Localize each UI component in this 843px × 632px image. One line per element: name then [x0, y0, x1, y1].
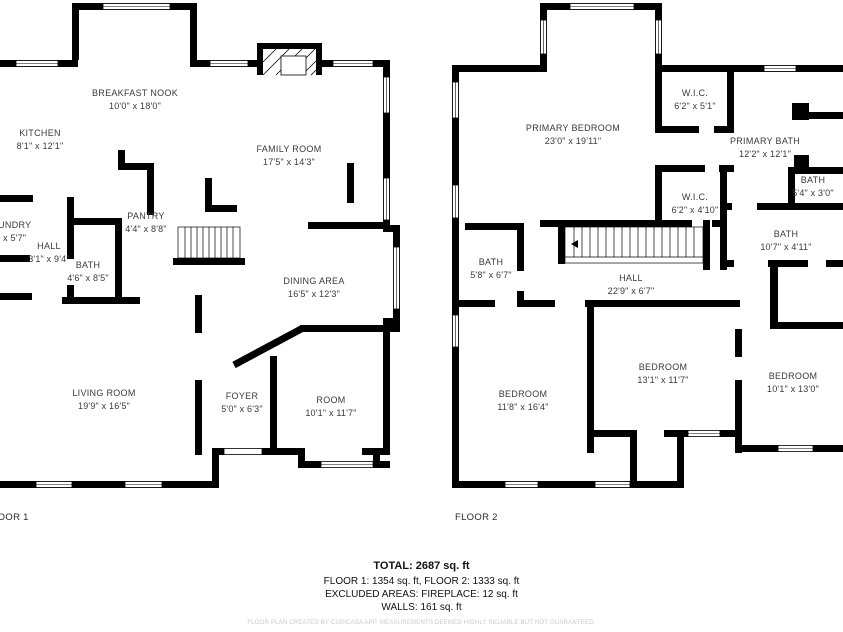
room-name: FAMILY ROOM [257, 145, 322, 154]
room-label: LIVING ROOM 19'9" x 16'5" [72, 389, 135, 411]
room-dims: 1" x 5'7" [0, 234, 31, 243]
floor2-caption: FLOOR 2 [455, 512, 498, 523]
room-dims: 23'0" x 19'11" [526, 137, 620, 146]
room-label: BEDROOM 13'1" x 11'7" [637, 363, 688, 385]
room-name: BEDROOM [637, 363, 688, 372]
room-label: HALL 3'1" x 9'4" [28, 242, 70, 264]
room-name: BREAKFAST NOOK [92, 89, 178, 98]
room-label: BATH 5'4" x 3'0" [792, 176, 834, 198]
room-name: LIVING ROOM [72, 389, 135, 398]
room-label: W.I.C. 6'2" x 5'1" [674, 89, 716, 111]
room-name: BATH [470, 258, 512, 267]
room-label: LAUNDRY 1" x 5'7" [0, 221, 31, 243]
fireplace [257, 43, 322, 75]
room-label: DINING AREA 16'5" x 12'3" [283, 277, 344, 299]
room-name: LAUNDRY [0, 221, 31, 230]
floor1-caption: FLOOR 1 [0, 512, 29, 523]
room-name: BEDROOM [767, 372, 819, 381]
room-dims: 10'1" x 11'7" [305, 409, 356, 418]
room-dims: 8'1" x 12'1" [17, 142, 64, 151]
room-name: W.I.C. [674, 89, 716, 98]
room-name: DINING AREA [283, 277, 344, 286]
room-dims: 17'5" x 14'3" [257, 158, 322, 167]
summary-floors: FLOOR 1: 1354 sq. ft, FLOOR 2: 1333 sq. … [0, 576, 843, 587]
room-name: HALL [28, 242, 70, 251]
room-dims: 10'1" x 13'0" [767, 385, 819, 394]
room-dims: 16'5" x 12'3" [283, 290, 344, 299]
room-name: W.I.C. [672, 193, 719, 202]
room-label: KITCHEN 8'1" x 12'1" [17, 129, 64, 151]
room-label: PRIMARY BEDROOM 23'0" x 19'11" [526, 124, 620, 146]
room-name: BATH [67, 261, 109, 270]
summary-walls: WALLS: 161 sq. ft [0, 602, 843, 613]
summary-excluded-areas: EXCLUDED AREAS: FIREPLACE: 12 sq. ft [0, 589, 843, 600]
room-dims: 22'9" x 6'7" [608, 287, 655, 296]
room-label: BATH 4'6" x 8'5" [67, 261, 109, 283]
room-label: HALL 22'9" x 6'7" [608, 274, 655, 296]
stairs-direction-arrow-icon [571, 240, 578, 248]
stairs-floor2 [565, 227, 703, 263]
room-dims: 12'2" x 12'1" [730, 150, 800, 159]
room-dims: 5'4" x 3'0" [792, 189, 834, 198]
disclaimer-text: FLOOR PLAN CREATED BY CUBICASA APP. MEAS… [0, 620, 843, 626]
room-name: PANTRY [125, 212, 167, 221]
room-dims: 4'4" x 8'8" [125, 225, 167, 234]
room-dims: 19'9" x 16'5" [72, 402, 135, 411]
room-label: BEDROOM 11'8" x 16'4" [497, 390, 548, 412]
room-dims: 5'0" x 6'3" [221, 405, 263, 414]
room-name: PRIMARY BEDROOM [526, 124, 620, 133]
room-label: PRIMARY BATH 12'2" x 12'1" [730, 137, 800, 159]
room-name: PRIMARY BATH [730, 137, 800, 146]
room-name: BATH [792, 176, 834, 185]
room-dims: 6'2" x 5'1" [674, 102, 716, 111]
room-label: BREAKFAST NOOK 10'0" x 18'0" [92, 89, 178, 111]
room-label: ROOM 10'1" x 11'7" [305, 396, 356, 418]
room-name: KITCHEN [17, 129, 64, 138]
room-label: FAMILY ROOM 17'5" x 14'3" [257, 145, 322, 167]
stairs-floor1 [178, 227, 240, 258]
room-dims: 5'8" x 6'7" [470, 271, 512, 280]
room-label: W.I.C. 6'2" x 4'10" [672, 193, 719, 215]
room-label: BATH 10'7" x 4'11" [760, 230, 811, 252]
room-dims: 13'1" x 11'7" [637, 376, 688, 385]
room-name: HALL [608, 274, 655, 283]
room-dims: 11'8" x 16'4" [497, 403, 548, 412]
room-name: BATH [760, 230, 811, 239]
room-name: FOYER [221, 392, 263, 401]
summary-total: TOTAL: 2687 sq. ft [0, 560, 843, 572]
room-name: BEDROOM [497, 390, 548, 399]
room-dims: 3'1" x 9'4" [28, 255, 70, 264]
room-label: BATH 5'8" x 6'7" [470, 258, 512, 280]
floor-plan-canvas: BREAKFAST NOOK 10'0" x 18'0" KITCHEN 8'1… [0, 0, 843, 632]
room-label: PANTRY 4'4" x 8'8" [125, 212, 167, 234]
room-dims: 6'2" x 4'10" [672, 206, 719, 215]
room-dims: 10'0" x 18'0" [92, 102, 178, 111]
floor2-windows [453, 4, 814, 488]
room-name: ROOM [305, 396, 356, 405]
room-dims: 10'7" x 4'11" [760, 243, 811, 252]
room-label: BEDROOM 10'1" x 13'0" [767, 372, 819, 394]
room-dims: 4'6" x 8'5" [67, 274, 109, 283]
room-label: FOYER 5'0" x 6'3" [221, 392, 263, 414]
